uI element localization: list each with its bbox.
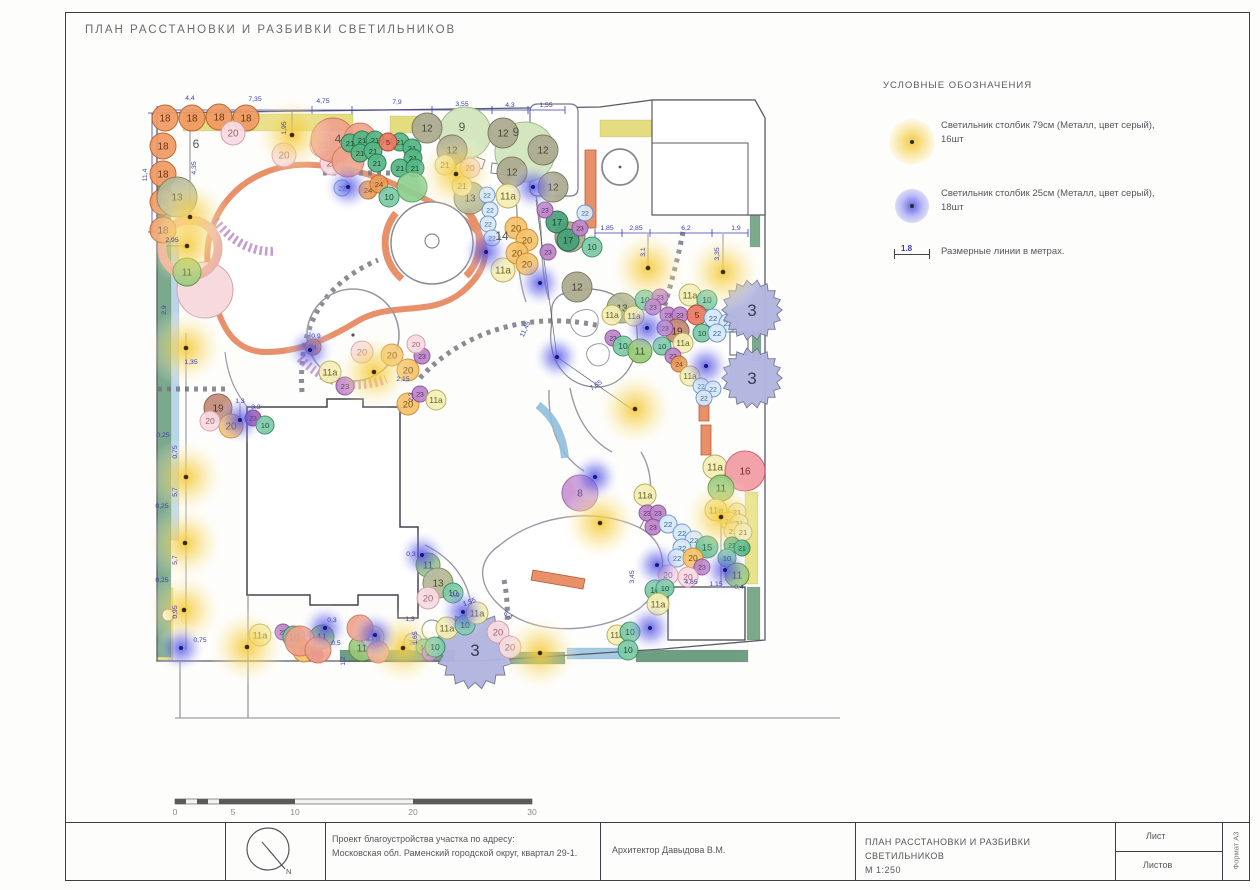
project-address: Проект благоустройства участка по адресу… bbox=[332, 833, 592, 861]
tb-v3 bbox=[600, 822, 601, 881]
format-label: Формат А3 bbox=[1232, 823, 1241, 879]
drawing-title: ПЛАН РАССТАНОВКИ И РАЗБИВКИ СВЕТИЛЬНИКОВ bbox=[865, 837, 1031, 861]
north-label: N bbox=[286, 866, 291, 878]
sheet-label: Лист bbox=[1146, 830, 1166, 844]
project-line1: Проект благоустройства участка по адресу… bbox=[332, 834, 515, 844]
project-line2: Московская обл. Раменский городской окру… bbox=[332, 848, 577, 858]
tb-v4 bbox=[855, 822, 856, 881]
tb-v1 bbox=[225, 822, 226, 881]
north-arrow bbox=[238, 824, 302, 882]
drawing-scale: М 1:250 bbox=[865, 865, 901, 875]
sheets-label: Листов bbox=[1143, 859, 1172, 873]
tb-v2 bbox=[325, 822, 326, 881]
sheet-frame bbox=[65, 12, 1250, 881]
architect: Архитектор Давыдова В.М. bbox=[612, 844, 725, 858]
titleblock-top-line bbox=[65, 822, 1250, 823]
drawing-sheet: 1818181818181818202020201311212121212121… bbox=[0, 0, 1260, 890]
drawing-title-cell: ПЛАН РАССТАНОВКИ И РАЗБИВКИ СВЕТИЛЬНИКОВ… bbox=[865, 836, 1110, 878]
format-strip: Формат А3 bbox=[1222, 822, 1251, 881]
tb-mid-line bbox=[1115, 851, 1222, 852]
